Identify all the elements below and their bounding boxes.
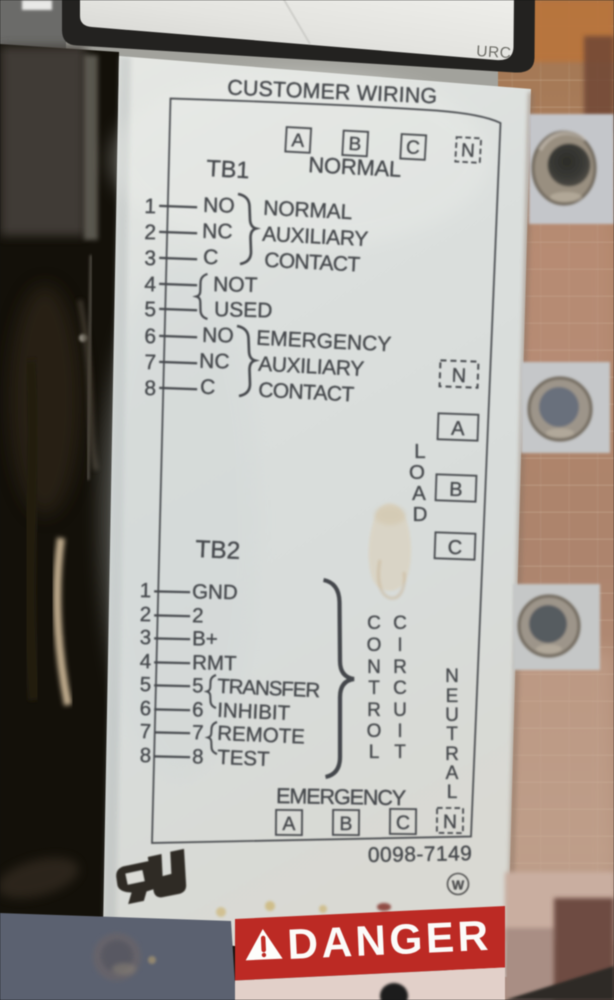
svg-text:5: 5 (139, 673, 151, 696)
svg-text:6: 6 (139, 697, 151, 720)
svg-text:3: 3 (144, 247, 156, 270)
svg-text:N: N (460, 140, 475, 162)
svg-text:USED: USED (214, 298, 273, 322)
svg-text:O: O (367, 635, 382, 656)
svg-text:R: R (367, 700, 381, 721)
svg-text:NO: NO (202, 324, 234, 348)
svg-text:W: W (452, 878, 465, 893)
svg-text:2: 2 (192, 604, 204, 627)
svg-text:A: A (446, 763, 459, 784)
svg-text:1: 1 (144, 195, 156, 218)
svg-text:C: C (405, 137, 420, 159)
svg-text:C: C (447, 537, 462, 559)
svg-text:4: 4 (144, 273, 157, 296)
svg-text:7: 7 (139, 720, 151, 743)
svg-text:3: 3 (139, 626, 151, 649)
svg-text:NOT: NOT (213, 273, 258, 297)
svg-text:C: C (396, 812, 410, 834)
svg-text:8: 8 (139, 744, 151, 767)
svg-text:5: 5 (192, 674, 204, 697)
svg-text:EMERGENCY: EMERGENCY (276, 784, 406, 810)
svg-text:U: U (445, 705, 459, 726)
svg-text:O: O (367, 721, 382, 742)
svg-text:C: C (393, 613, 407, 634)
svg-text:TRANSFER: TRANSFER (217, 675, 321, 702)
svg-text:T: T (368, 678, 380, 699)
svg-text:C: C (367, 613, 381, 634)
svg-text:0098-7149: 0098-7149 (368, 842, 472, 867)
svg-text:CONTACT: CONTACT (264, 249, 361, 277)
svg-text:NO: NO (203, 194, 235, 218)
svg-text:5: 5 (144, 298, 156, 321)
svg-text:URC: URC (476, 43, 512, 62)
svg-text:N: N (443, 811, 457, 833)
svg-text:A: A (451, 418, 466, 440)
svg-text:7: 7 (192, 721, 204, 744)
svg-text:NORMAL: NORMAL (308, 152, 402, 182)
svg-text:8: 8 (192, 745, 204, 768)
svg-text:TEST: TEST (217, 746, 271, 771)
svg-text:L: L (414, 440, 425, 463)
svg-text:R: R (393, 657, 407, 678)
svg-text:C: C (393, 678, 407, 699)
svg-text:L: L (369, 742, 380, 763)
svg-text:U: U (393, 700, 407, 721)
svg-text:B: B (339, 813, 352, 835)
svg-text:A: A (282, 813, 295, 835)
svg-text:I: I (397, 721, 402, 742)
svg-text:GND: GND (192, 580, 238, 604)
svg-text:R: R (445, 744, 459, 765)
svg-text:NC: NC (199, 350, 230, 374)
svg-text:O: O (409, 461, 425, 484)
svg-text:A: A (412, 482, 426, 505)
svg-text:N: N (451, 365, 466, 387)
svg-text:TB2: TB2 (195, 536, 241, 565)
svg-text:1: 1 (139, 579, 151, 602)
svg-text:N: N (367, 657, 381, 678)
svg-text:T: T (446, 724, 458, 745)
svg-text:E: E (446, 686, 459, 707)
svg-text:C: C (200, 376, 216, 399)
svg-text:INHIBIT: INHIBIT (217, 699, 291, 725)
svg-text:REMOTE: REMOTE (217, 722, 306, 749)
svg-text:2: 2 (144, 221, 156, 244)
svg-text:D: D (413, 503, 428, 526)
svg-text:N: N (445, 666, 459, 687)
svg-text:B: B (348, 134, 362, 156)
svg-text:NC: NC (202, 220, 233, 244)
svg-text:B+: B+ (192, 627, 218, 651)
svg-text:C: C (203, 246, 219, 269)
svg-text:CONTACT: CONTACT (258, 379, 355, 407)
svg-text:T: T (394, 742, 406, 763)
svg-text:TB1: TB1 (206, 155, 250, 183)
svg-text:7: 7 (144, 351, 156, 374)
svg-text:RMT: RMT (192, 651, 237, 675)
svg-text:NORMAL: NORMAL (263, 197, 353, 224)
svg-text:6: 6 (144, 325, 156, 348)
svg-text:8: 8 (144, 377, 156, 400)
svg-text:B: B (449, 479, 463, 501)
svg-text:L: L (447, 782, 458, 803)
svg-text:2: 2 (139, 603, 151, 626)
svg-text:I: I (397, 635, 402, 656)
svg-text:6: 6 (192, 698, 204, 721)
svg-text:4: 4 (139, 650, 151, 673)
svg-text:A: A (291, 130, 305, 152)
